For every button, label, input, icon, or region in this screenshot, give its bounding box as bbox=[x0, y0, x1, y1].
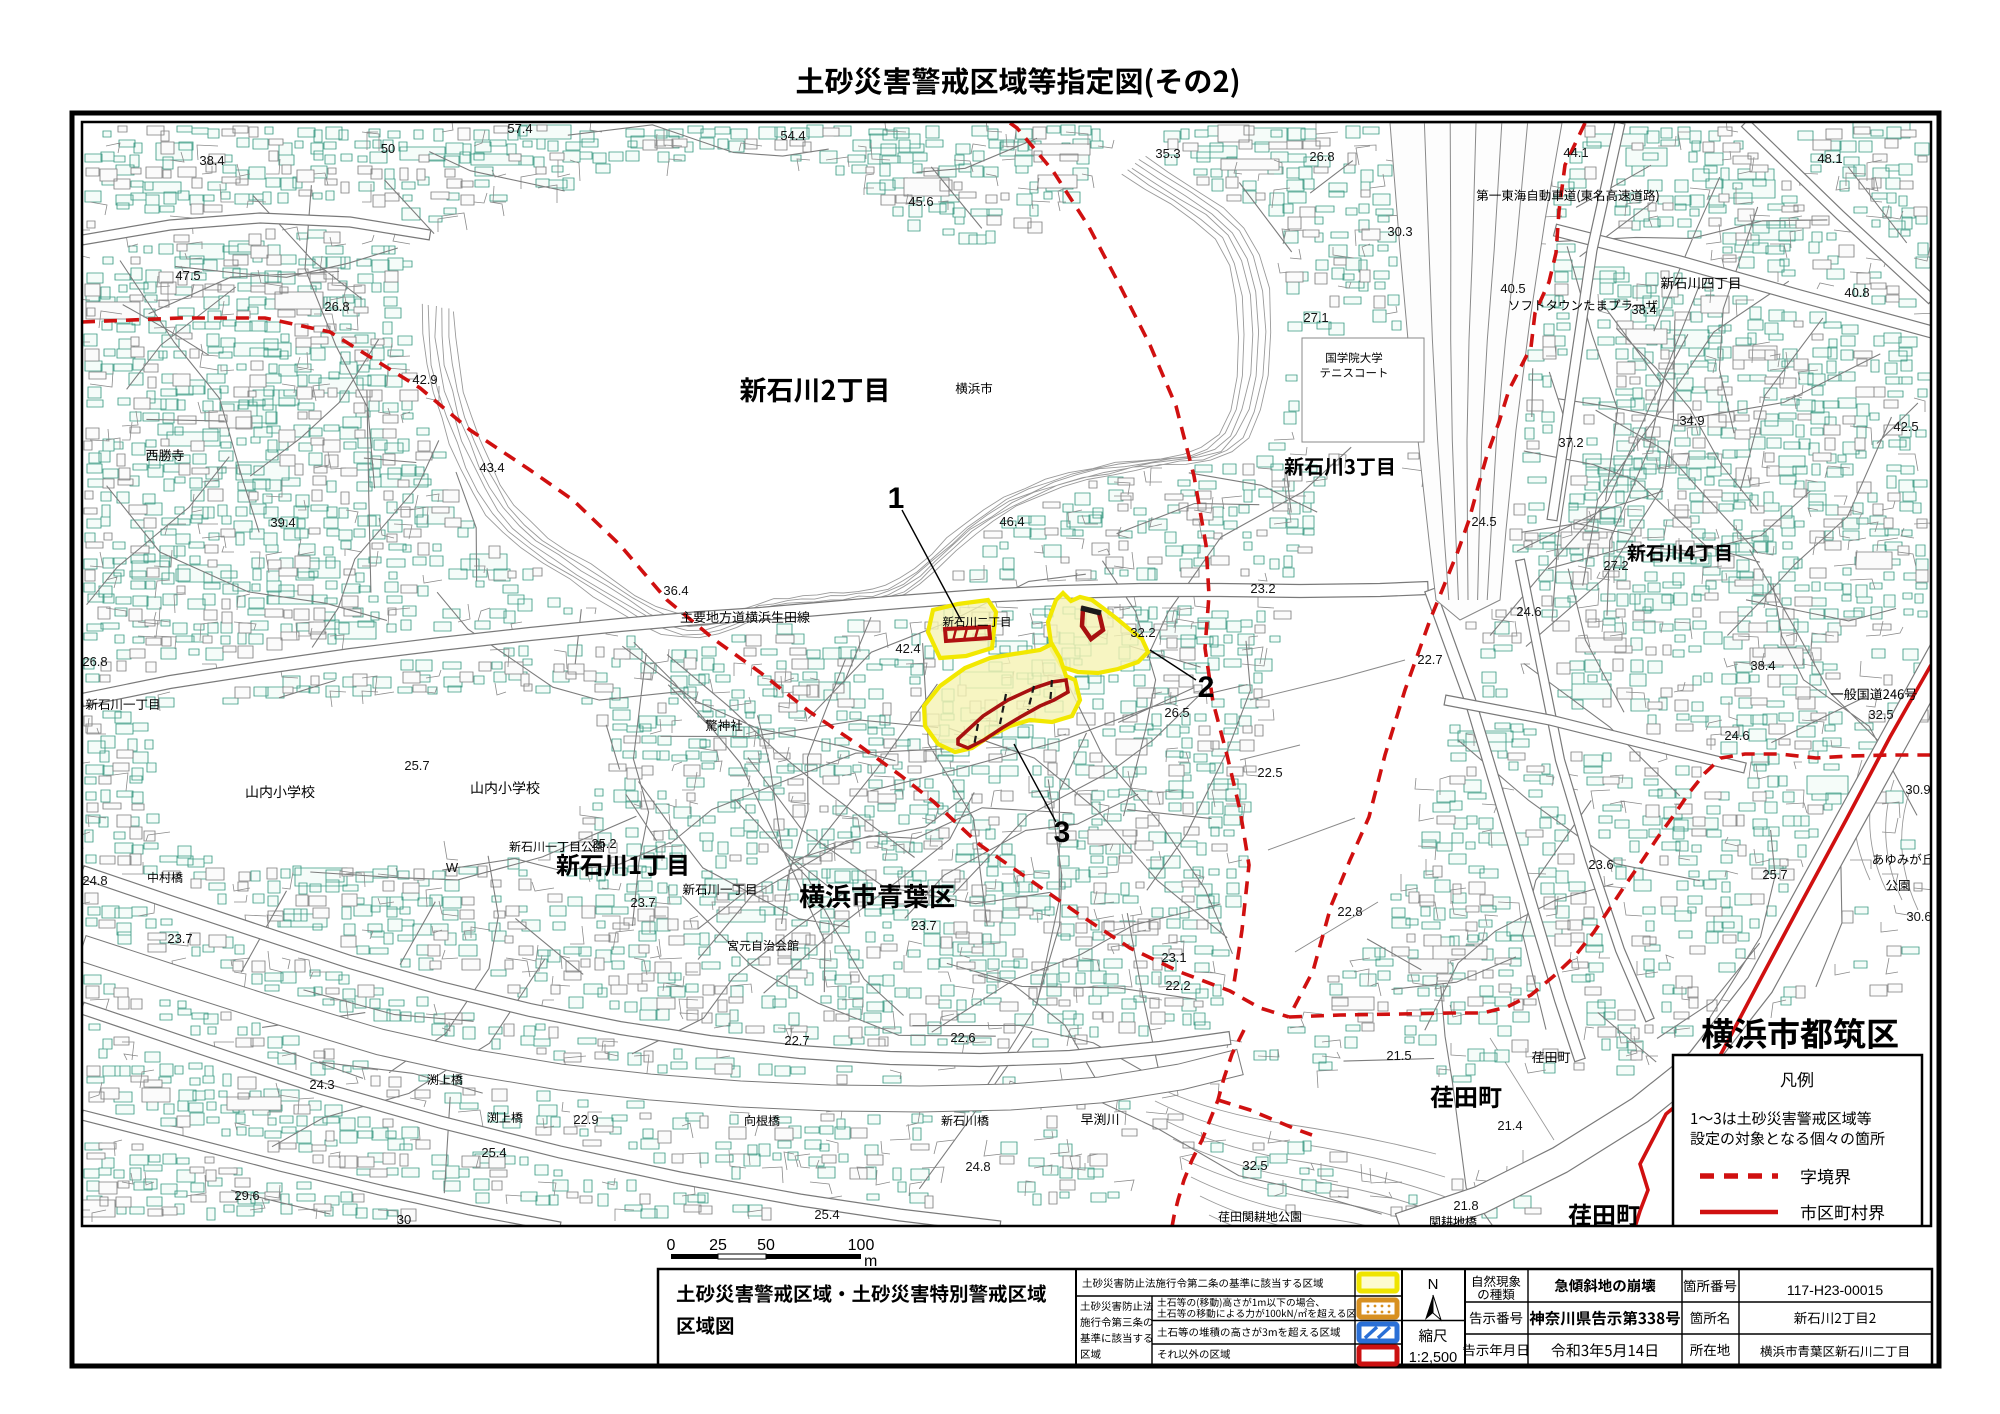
svg-text:54.4: 54.4 bbox=[780, 128, 805, 143]
svg-text:32.5: 32.5 bbox=[1868, 707, 1893, 722]
svg-text:24.6: 24.6 bbox=[1516, 604, 1541, 619]
svg-text:117-H23-00015: 117-H23-00015 bbox=[1787, 1282, 1883, 1298]
svg-text:24.3: 24.3 bbox=[309, 1077, 334, 1092]
svg-text:50: 50 bbox=[381, 141, 395, 156]
svg-text:25.2: 25.2 bbox=[591, 836, 616, 851]
svg-text:22.7: 22.7 bbox=[1417, 652, 1442, 667]
svg-text:36.4: 36.4 bbox=[663, 583, 688, 598]
svg-text:32.5: 32.5 bbox=[1242, 1158, 1267, 1173]
svg-text:25.4: 25.4 bbox=[814, 1207, 839, 1222]
svg-text:24.6: 24.6 bbox=[1724, 728, 1749, 743]
svg-text:43.4: 43.4 bbox=[479, 460, 504, 475]
svg-text:1: 1 bbox=[888, 482, 905, 515]
svg-text:22.2: 22.2 bbox=[1165, 978, 1190, 993]
svg-text:47.5: 47.5 bbox=[175, 268, 200, 283]
svg-text:42.4: 42.4 bbox=[895, 641, 920, 656]
svg-text:22.9: 22.9 bbox=[573, 1112, 598, 1127]
svg-text:2: 2 bbox=[1198, 671, 1215, 704]
svg-text:26.8: 26.8 bbox=[1309, 149, 1334, 164]
svg-text:40.8: 40.8 bbox=[1844, 285, 1869, 300]
svg-text:0: 0 bbox=[667, 1237, 676, 1254]
svg-text:25.7: 25.7 bbox=[404, 758, 429, 773]
svg-text:22.5: 22.5 bbox=[1257, 765, 1282, 780]
svg-text:48.1: 48.1 bbox=[1817, 151, 1842, 166]
svg-text:23.6: 23.6 bbox=[1588, 857, 1613, 872]
svg-text:42.5: 42.5 bbox=[1893, 419, 1918, 434]
svg-text:100: 100 bbox=[848, 1237, 875, 1254]
svg-text:26.5: 26.5 bbox=[1164, 705, 1189, 720]
svg-text:37.2: 37.2 bbox=[1558, 435, 1583, 450]
svg-text:30.3: 30.3 bbox=[1387, 224, 1412, 239]
svg-text:29.6: 29.6 bbox=[234, 1188, 259, 1203]
svg-text:22.6: 22.6 bbox=[950, 1030, 975, 1045]
svg-text:3: 3 bbox=[1054, 816, 1071, 849]
svg-text:24.8: 24.8 bbox=[82, 873, 107, 888]
svg-text:27.2: 27.2 bbox=[1603, 558, 1628, 573]
svg-text:42.9: 42.9 bbox=[412, 372, 437, 387]
svg-text:N: N bbox=[1428, 1276, 1439, 1293]
svg-text:46.4: 46.4 bbox=[999, 514, 1024, 529]
svg-text:23.2: 23.2 bbox=[1250, 581, 1275, 596]
svg-text:23.7: 23.7 bbox=[911, 918, 936, 933]
svg-text:m: m bbox=[864, 1253, 877, 1270]
svg-text:50: 50 bbox=[757, 1237, 775, 1254]
svg-text:45.6: 45.6 bbox=[908, 194, 933, 209]
svg-text:30.9: 30.9 bbox=[1905, 782, 1930, 797]
svg-text:39.4: 39.4 bbox=[270, 515, 295, 530]
svg-text:23.7: 23.7 bbox=[630, 895, 655, 910]
svg-text:38.4: 38.4 bbox=[199, 153, 224, 168]
svg-text:35.3: 35.3 bbox=[1155, 146, 1180, 161]
svg-text:23.1: 23.1 bbox=[1161, 950, 1186, 965]
svg-text:44.1: 44.1 bbox=[1563, 145, 1588, 160]
svg-text:24.8: 24.8 bbox=[965, 1159, 990, 1174]
svg-text:40.5: 40.5 bbox=[1500, 281, 1525, 296]
svg-text:W: W bbox=[446, 860, 459, 875]
svg-text:30.6: 30.6 bbox=[1906, 909, 1931, 924]
svg-text:38.4: 38.4 bbox=[1631, 302, 1656, 317]
svg-text:1:2,500: 1:2,500 bbox=[1409, 1350, 1457, 1366]
svg-text:32.2: 32.2 bbox=[1130, 625, 1155, 640]
svg-text:21.8: 21.8 bbox=[1453, 1198, 1478, 1213]
svg-text:38.4: 38.4 bbox=[1750, 658, 1775, 673]
svg-text:21.5: 21.5 bbox=[1386, 1048, 1411, 1063]
svg-text:25.4: 25.4 bbox=[481, 1145, 506, 1160]
svg-text:26.8: 26.8 bbox=[82, 654, 107, 669]
svg-text:25.7: 25.7 bbox=[1762, 867, 1787, 882]
svg-text:22.8: 22.8 bbox=[1337, 904, 1362, 919]
svg-text:22.7: 22.7 bbox=[784, 1033, 809, 1048]
svg-text:23.7: 23.7 bbox=[167, 931, 192, 946]
svg-text:21.4: 21.4 bbox=[1497, 1118, 1522, 1133]
svg-text:34.9: 34.9 bbox=[1679, 413, 1704, 428]
svg-text:27.1: 27.1 bbox=[1303, 310, 1328, 325]
svg-text:26.8: 26.8 bbox=[324, 299, 349, 314]
svg-text:24.5: 24.5 bbox=[1471, 514, 1496, 529]
svg-text:25: 25 bbox=[709, 1237, 727, 1254]
